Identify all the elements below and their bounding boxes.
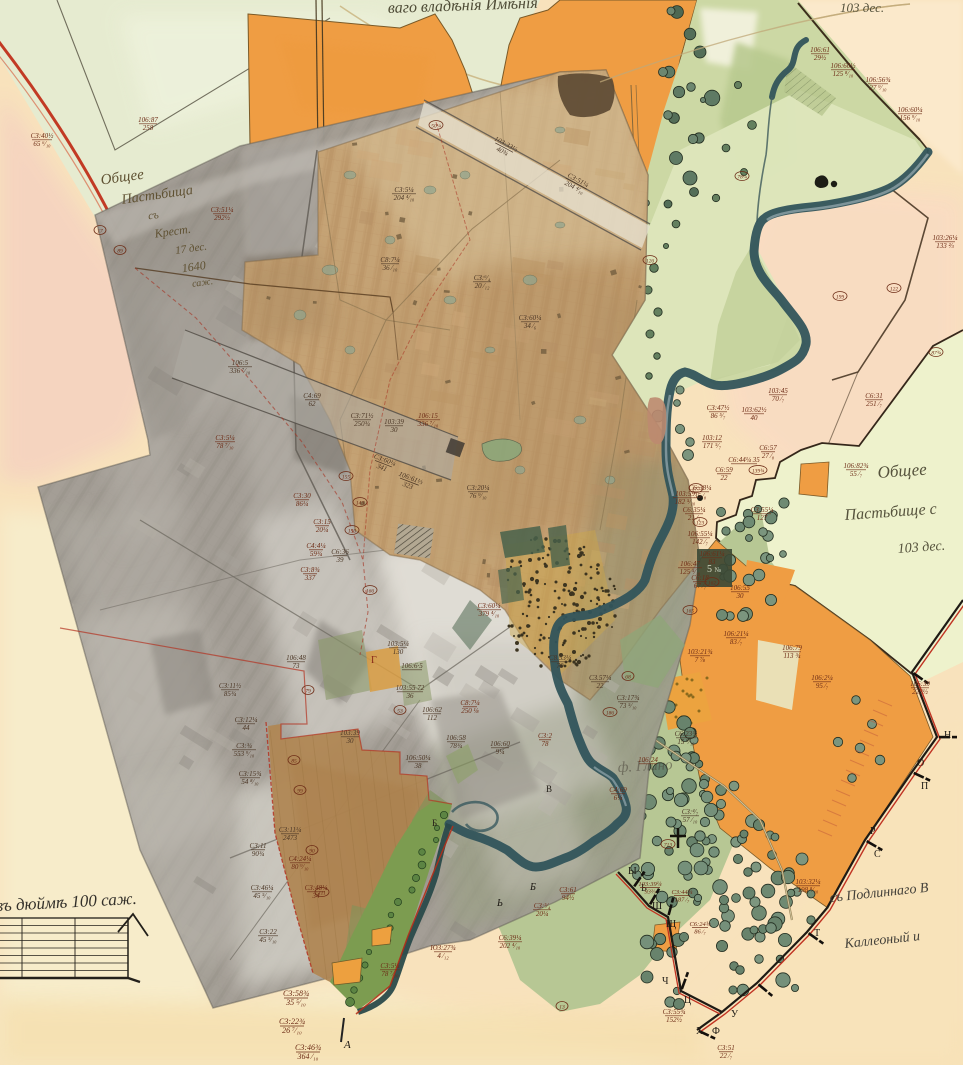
svg-text:93⅔: 93⅔ [644, 889, 656, 896]
svg-text:133 ⅔: 133 ⅔ [936, 242, 954, 250]
svg-text:55 ⁄₇: 55 ⁄₇ [850, 470, 863, 478]
svg-text:15 ⁹⁄₁₀: 15 ⁹⁄₁₀ [677, 738, 695, 746]
svg-text:204 ⁴⁄₁₀: 204 ⁴⁄₁₀ [394, 194, 415, 202]
svg-text:198 ⁸⁄₁₀: 198 ⁸⁄₁₀ [798, 886, 819, 894]
svg-text:54 ⁸⁄₁₀: 54 ⁸⁄₁₀ [241, 778, 259, 786]
svg-text:78 ⁷⁄₁₀: 78 ⁷⁄₁₀ [216, 442, 234, 450]
svg-text:35 ⁵⁄₁₀: 35 ⁵⁄₁₀ [285, 998, 306, 1007]
svg-text:103:45: 103:45 [768, 387, 788, 395]
svg-text:СЗ:55¼: СЗ:55¼ [751, 506, 774, 514]
svg-text:С6:36: С6:36 [331, 548, 349, 556]
svg-text:336 ⁷⁄₁₀: 336 ⁷⁄₁₀ [229, 367, 251, 375]
svg-text:СЗ:60¼: СЗ:60¼ [519, 314, 542, 322]
svg-text:СЗ:20¼: СЗ:20¼ [467, 484, 490, 492]
svg-text:70: 70 [557, 662, 565, 670]
svg-text:22 ⁄₇: 22 ⁄₇ [720, 1052, 733, 1060]
svg-text:106:47: 106:47 [680, 560, 700, 568]
svg-text:С6:24¾: С6:24¾ [689, 921, 710, 928]
svg-text:106:56¾: 106:56¾ [865, 76, 891, 84]
svg-text:Ф: Ф [712, 1026, 720, 1037]
svg-text:СЗ:40½: СЗ:40½ [31, 132, 54, 140]
svg-text:553 ⁹⁄₁₀: 553 ⁹⁄₁₀ [234, 750, 255, 758]
svg-text:103:12: 103:12 [702, 434, 722, 442]
svg-text:106:55: 106:55 [730, 584, 750, 592]
svg-text:38: 38 [414, 762, 423, 770]
svg-text:О: О [917, 758, 924, 769]
svg-text:186: 186 [606, 711, 615, 717]
svg-text:Ы: Ы [628, 866, 637, 877]
svg-text:СЗ:⁵⁄₄: СЗ:⁵⁄₄ [534, 902, 551, 910]
svg-text:162: 162 [708, 581, 717, 587]
svg-text:СЗ:5¼: СЗ:5¼ [380, 962, 400, 970]
svg-text:П: П [921, 781, 928, 792]
svg-text:106:39: 106:39 [910, 680, 930, 688]
svg-text:50¼: 50¼ [431, 124, 441, 130]
svg-text:53: 53 [397, 709, 403, 715]
svg-text:106:60½: 106:60½ [830, 62, 856, 70]
svg-text:228½: 228½ [912, 688, 929, 696]
svg-text:С4:4¼: С4:4¼ [306, 542, 326, 550]
svg-text:73: 73 [293, 662, 301, 670]
svg-text:379 ⁴⁄₁₀: 379 ⁴⁄₁₀ [478, 610, 500, 618]
svg-text:СЗ:11: СЗ:11 [250, 842, 267, 850]
svg-text:89: 89 [117, 249, 123, 255]
svg-text:106:55¼: 106:55¼ [687, 530, 713, 538]
svg-text:СЗ.57¼: СЗ.57¼ [589, 674, 612, 682]
svg-text:78¾: 78¾ [450, 742, 463, 750]
svg-text:76 ⁹⁄₁₀: 76 ⁹⁄₁₀ [469, 492, 487, 500]
svg-text:Ч: Ч [662, 976, 669, 987]
svg-text:Общее: Общее [877, 460, 928, 482]
svg-text:94½: 94½ [562, 894, 575, 902]
svg-text:258: 258 [143, 124, 154, 132]
svg-text:9¼: 9¼ [496, 748, 506, 756]
svg-text:Ц: Ц [684, 995, 691, 1006]
svg-text:СЗ:46¾: СЗ:46¾ [295, 1043, 321, 1052]
svg-text:292½: 292½ [214, 214, 231, 222]
svg-text:251 ⁄₇: 251 ⁄₇ [866, 400, 882, 408]
svg-text:С6:57: С6:57 [759, 444, 777, 452]
svg-text:106:61: 106:61 [810, 46, 830, 54]
svg-text:113 ¾: 113 ¾ [784, 652, 802, 660]
svg-text:Ш: Ш [652, 901, 662, 912]
svg-text:103:39: 103:39 [384, 418, 404, 426]
svg-text:С4:24¼: С4:24¼ [289, 855, 313, 863]
svg-text:177: 177 [692, 487, 701, 493]
svg-text:78: 78 [542, 740, 550, 748]
svg-text:С6:39¼: С6:39¼ [499, 934, 523, 942]
svg-text:СЗ:55¾: СЗ:55¾ [663, 1008, 686, 1016]
svg-text:187 ⁄₇: 187 ⁄₇ [675, 897, 690, 904]
svg-text:27 ⁹⁄₁₀: 27 ⁹⁄₁₀ [869, 84, 887, 92]
svg-text:А: А [343, 1039, 351, 1051]
svg-text:СЗ:44¾: СЗ:44¾ [671, 889, 692, 896]
svg-text:Т: Т [814, 928, 820, 939]
svg-text:СЗ:¾: СЗ:¾ [236, 742, 252, 750]
svg-text:80 ⁹⁄₁₀: 80 ⁹⁄₁₀ [291, 863, 309, 871]
svg-text:Г: Г [371, 655, 377, 666]
svg-text:44: 44 [243, 724, 251, 732]
svg-text:40: 40 [751, 414, 759, 422]
svg-text:106:82¾: 106:82¾ [843, 462, 869, 470]
svg-text:86 ⁄₇: 86 ⁄₇ [694, 929, 706, 936]
svg-text:30: 30 [390, 426, 399, 434]
svg-text:139¾: 139¾ [752, 469, 764, 475]
svg-text:22: 22 [721, 474, 729, 482]
svg-text:Ь: Ь [496, 898, 503, 909]
svg-text:45 ⁵⁄₁₀: 45 ⁵⁄₁₀ [259, 936, 277, 944]
svg-text:С4:69: С4:69 [303, 392, 321, 400]
svg-text:У: У [731, 1009, 739, 1020]
svg-text:106:5: 106:5 [232, 359, 249, 367]
svg-text:99: 99 [297, 789, 303, 795]
svg-text:106:62: 106:62 [422, 706, 442, 714]
svg-text:С6:31: С6:31 [865, 392, 883, 400]
svg-text:СЗ:15¾: СЗ:15¾ [239, 770, 262, 778]
svg-text:106:24: 106:24 [638, 756, 658, 764]
svg-text:165: 165 [686, 609, 695, 615]
svg-text:С4:69: С4:69 [609, 786, 627, 794]
svg-text:103:55 72: 103:55 72 [396, 684, 425, 692]
svg-text:127: 127 [757, 514, 768, 522]
svg-text:106:21¼: 106:21¼ [723, 630, 749, 638]
svg-text:СЗ:22: СЗ:22 [259, 928, 277, 936]
svg-text:СЗ:47½: СЗ:47½ [707, 404, 730, 412]
svg-text:Н: Н [944, 730, 951, 741]
svg-text:111: 111 [318, 891, 326, 897]
svg-text:78 ⁷⁄₁₀: 78 ⁷⁄₁₀ [381, 970, 399, 978]
svg-text:СЗ:8¾: СЗ:8¾ [300, 566, 320, 574]
svg-text:СЗ:12¼: СЗ:12¼ [235, 716, 258, 724]
svg-text:106:61¼: 106:61¼ [699, 550, 725, 558]
svg-text:106:60: 106:60 [490, 740, 510, 748]
svg-text:7 ⅞: 7 ⅞ [695, 656, 706, 664]
svg-text:С8.53¼: С8.53¼ [549, 654, 572, 662]
svg-text:86 ⁵⁄₇: 86 ⁵⁄₇ [711, 412, 726, 420]
svg-text:78¼: 78¼ [737, 175, 747, 181]
svg-text:СЗ:2: СЗ:2 [538, 732, 552, 740]
svg-text:СЗ:11½: СЗ:11½ [219, 682, 242, 690]
svg-text:35 ⁄₈: 35 ⁄₈ [693, 492, 707, 500]
svg-text:143: 143 [356, 500, 365, 507]
svg-text:СЗ:⁶⁄₄: СЗ:⁶⁄₄ [474, 274, 491, 282]
svg-text:13: 13 [559, 1005, 565, 1011]
svg-text:29½: 29½ [814, 54, 827, 62]
svg-text:Б: Б [432, 818, 437, 828]
svg-text:6¼: 6¼ [614, 794, 624, 802]
svg-text:45 ⁵⁄₁₀: 45 ⁵⁄₁₀ [253, 892, 271, 900]
svg-text:152½: 152½ [666, 1016, 683, 1024]
svg-text:СЗ:17¾: СЗ:17¾ [617, 694, 640, 702]
svg-text:22: 22 [597, 682, 605, 690]
svg-text:СЗ:22¾: СЗ:22¾ [279, 1017, 305, 1026]
svg-text:364 ⁄₁₀: 364 ⁄₁₀ [297, 1052, 319, 1061]
svg-text:106:79: 106:79 [782, 644, 802, 652]
svg-text:106:2¼: 106:2¼ [811, 674, 833, 682]
svg-text:СЗ:51: СЗ:51 [717, 1044, 734, 1052]
svg-text:С6:59: С6:59 [715, 466, 733, 474]
svg-text:Р: Р [870, 826, 876, 837]
svg-text:103:5¼: 103:5¼ [387, 640, 409, 648]
svg-text:171 ⁵⁄₇: 171 ⁵⁄₇ [703, 442, 722, 450]
svg-text:166: 166 [366, 589, 375, 595]
svg-text:С8:7¼: С8:7¼ [460, 699, 480, 707]
svg-text:27 ⁄₈: 27 ⁄₈ [762, 452, 775, 460]
svg-text:103:21¾: 103:21¾ [687, 648, 713, 656]
svg-text:126: 126 [646, 259, 655, 265]
svg-text:20 ⁄₁₂: 20 ⁄₁₂ [475, 282, 490, 290]
svg-text:СЗ:11¼: СЗ:11¼ [279, 826, 302, 834]
svg-text:Х: Х [696, 1026, 704, 1037]
svg-text:156 ⁹⁄₁₀: 156 ⁹⁄₁₀ [900, 114, 921, 122]
svg-text:съ: съ [147, 209, 159, 222]
svg-text:713: 713 [664, 843, 673, 849]
svg-text:СЗ:15: СЗ:15 [313, 518, 331, 526]
svg-text:106:6·5: 106:6·5 [401, 662, 423, 670]
svg-text:123: 123 [696, 521, 705, 527]
svg-text:112: 112 [427, 714, 437, 722]
svg-text:95 ⁄₇: 95 ⁄₇ [816, 682, 829, 690]
svg-text:86¼: 86¼ [296, 500, 309, 508]
svg-text:70 ⁄₇: 70 ⁄₇ [772, 395, 785, 403]
svg-text:36 ⁄₁₀: 36 ⁄₁₀ [382, 264, 398, 272]
svg-text:103:39: 103:39 [340, 729, 360, 737]
svg-text:103:26¼: 103:26¼ [932, 234, 958, 242]
svg-text:90¾: 90¾ [252, 850, 265, 858]
svg-text:Щ: Щ [666, 919, 676, 930]
svg-text:С8:7¼: С8:7¼ [380, 256, 400, 264]
svg-text:20¼: 20¼ [316, 526, 329, 534]
svg-text:17: 17 [97, 229, 103, 235]
svg-text:С6:23¾: С6:23¾ [675, 730, 699, 738]
svg-text:ЮЗ:27¾: ЮЗ:27¾ [429, 944, 456, 952]
svg-text:106:48: 106:48 [286, 654, 306, 662]
svg-text:57 ⁄₁₀: 57 ⁄₁₀ [683, 816, 698, 824]
svg-text:83: 83 [709, 558, 717, 566]
svg-text:СЗ:71½: СЗ:71½ [351, 412, 374, 420]
svg-text:С6:35¼: С6:35¼ [683, 506, 707, 514]
svg-text:СЗ:⁴⁄₇: СЗ:⁴⁄₇ [682, 808, 699, 816]
svg-text:103 дес.: 103 дес. [840, 0, 884, 15]
svg-text:68: 68 [625, 675, 631, 681]
svg-text:122: 122 [890, 287, 899, 293]
svg-text:83 ⁄₇: 83 ⁄₇ [730, 638, 743, 646]
svg-text:125 ⁸⁄₁₀: 125 ⁸⁄₁₀ [833, 70, 854, 78]
svg-text:79: 79 [305, 689, 311, 695]
svg-text:С: С [874, 849, 881, 860]
svg-text:87¾: 87¾ [931, 351, 941, 357]
svg-text:С6:44¼ 35: С6:44¼ 35 [728, 456, 760, 464]
svg-text:С6:18: С6:18 [691, 574, 709, 582]
svg-text:62: 62 [309, 400, 317, 408]
svg-text:65 ⁶⁄₁₀: 65 ⁶⁄₁₀ [33, 140, 51, 148]
svg-text:2473: 2473 [283, 834, 298, 842]
svg-text:106:60¼: 106:60¼ [897, 106, 923, 114]
svg-text:4 ⁄₁₂: 4 ⁄₁₂ [437, 952, 449, 960]
svg-text:39: 39 [336, 556, 345, 564]
svg-text:30: 30 [736, 592, 745, 600]
svg-text:СЗ:61: СЗ:61 [559, 886, 576, 894]
svg-text:30: 30 [346, 737, 355, 745]
svg-text:336 ⁷⁄₁₀: 336 ⁷⁄₁₀ [417, 420, 439, 428]
svg-text:СЗ:5¼: СЗ:5¼ [394, 186, 414, 194]
svg-text:85¾: 85¾ [224, 690, 237, 698]
svg-text:250 ⅛: 250 ⅛ [461, 707, 479, 715]
svg-text:59¾: 59¾ [310, 550, 323, 558]
svg-text:106:50¼: 106:50¼ [405, 754, 431, 762]
svg-text:106:87: 106:87 [138, 116, 158, 124]
svg-text:103:32¼: 103:32¼ [795, 878, 821, 886]
svg-text:СЗ:58¾: СЗ:58¾ [283, 989, 309, 998]
svg-text:155: 155 [342, 475, 351, 481]
svg-text:СЗ:46¼: СЗ:46¼ [251, 884, 274, 892]
svg-text:150: 150 [348, 529, 357, 535]
svg-text:182 ⁵⁄₁₀: 182 ⁵⁄₁₀ [675, 498, 696, 506]
svg-text:34 ⁄₆: 34 ⁄₆ [523, 322, 537, 330]
svg-text:250¾: 250¾ [354, 420, 371, 428]
svg-text:СЗ:51¼: СЗ:51¼ [211, 206, 234, 214]
svg-text:103:62½: 103:62½ [741, 406, 767, 414]
svg-text:103:39¼: 103:39¼ [638, 881, 661, 888]
svg-text:36: 36 [406, 692, 415, 700]
svg-text:СЗ:60¼: СЗ:60¼ [478, 602, 501, 610]
svg-text:106:58: 106:58 [446, 734, 466, 742]
svg-text:202 ⁴⁄₁₀: 202 ⁴⁄₁₀ [500, 942, 521, 950]
svg-text:В: В [546, 784, 552, 794]
svg-text:90: 90 [309, 849, 315, 855]
svg-text:73 ⁵⁄₁₀: 73 ⁵⁄₁₀ [619, 702, 637, 710]
svg-text:26 ⁷⁄₁₀: 26 ⁷⁄₁₀ [282, 1026, 302, 1035]
svg-text:337: 337 [304, 574, 316, 582]
svg-text:СЗ:30: СЗ:30 [293, 492, 311, 500]
svg-text:67 ⁄₇: 67 ⁄₇ [694, 582, 707, 590]
svg-text:20¼: 20¼ [536, 910, 549, 918]
svg-text:199: 199 [836, 295, 845, 301]
svg-text:85: 85 [291, 759, 297, 765]
svg-text:Б: Б [529, 882, 536, 893]
svg-text:СЗ:5¼: СЗ:5¼ [215, 434, 235, 442]
svg-text:142 ⁄₇: 142 ⁄₇ [692, 538, 708, 546]
svg-text:106:15: 106:15 [418, 412, 438, 420]
svg-text:130: 130 [393, 648, 404, 656]
